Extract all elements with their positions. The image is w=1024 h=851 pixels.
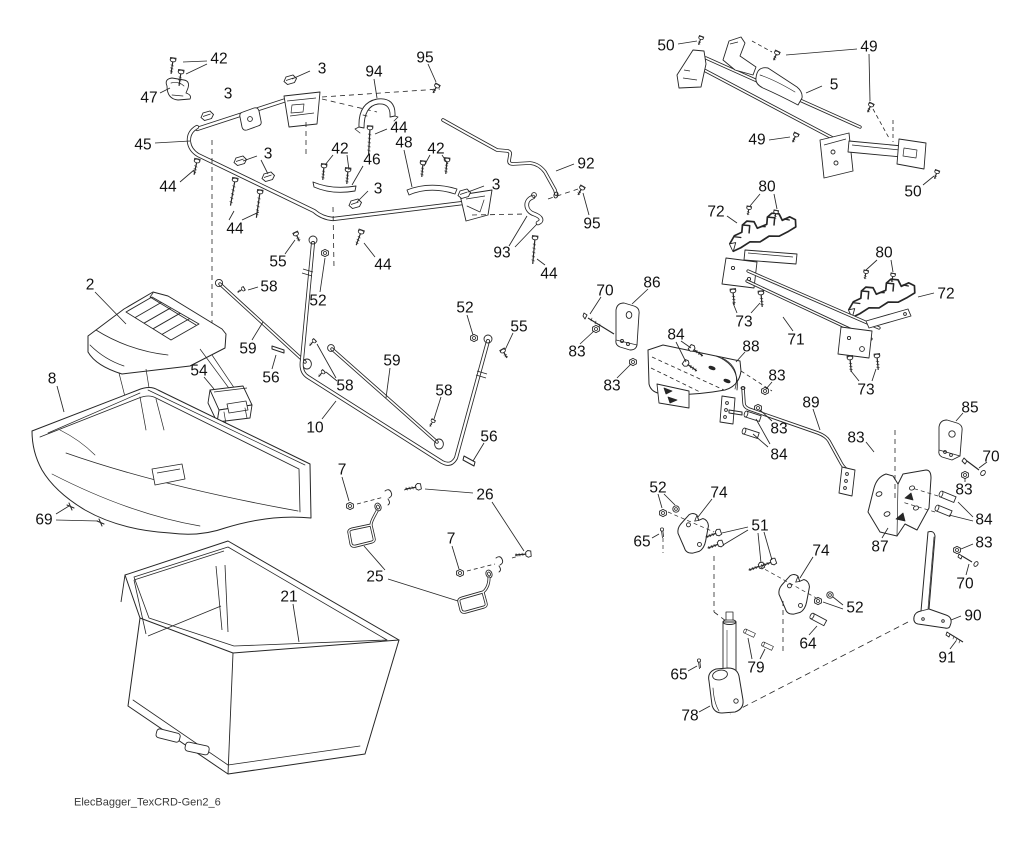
svg-text:87: 87 bbox=[871, 539, 888, 556]
svg-text:49: 49 bbox=[860, 39, 877, 56]
svg-text:84: 84 bbox=[975, 512, 993, 529]
svg-text:56: 56 bbox=[480, 429, 497, 446]
svg-text:58: 58 bbox=[435, 383, 452, 400]
svg-text:52: 52 bbox=[309, 293, 326, 310]
svg-text:42: 42 bbox=[427, 141, 444, 158]
svg-text:44: 44 bbox=[226, 221, 244, 238]
svg-text:47: 47 bbox=[140, 90, 157, 107]
svg-text:55: 55 bbox=[510, 319, 527, 336]
svg-text:86: 86 bbox=[643, 275, 660, 292]
svg-text:54: 54 bbox=[190, 363, 208, 380]
svg-text:3: 3 bbox=[374, 181, 383, 198]
svg-text:73: 73 bbox=[735, 314, 752, 331]
svg-text:88: 88 bbox=[742, 339, 759, 356]
svg-text:72: 72 bbox=[707, 204, 724, 221]
svg-text:65: 65 bbox=[633, 534, 650, 551]
svg-text:59: 59 bbox=[383, 353, 400, 370]
svg-text:ElecBagger_TexCRD-Gen2_6: ElecBagger_TexCRD-Gen2_6 bbox=[74, 797, 221, 809]
svg-text:21: 21 bbox=[280, 589, 297, 606]
svg-text:46: 46 bbox=[363, 152, 380, 169]
svg-text:44: 44 bbox=[159, 179, 177, 196]
svg-text:50: 50 bbox=[904, 184, 922, 201]
svg-text:95: 95 bbox=[583, 216, 600, 233]
svg-text:80: 80 bbox=[758, 179, 776, 196]
svg-text:91: 91 bbox=[938, 650, 955, 667]
svg-text:90: 90 bbox=[964, 608, 982, 625]
svg-text:44: 44 bbox=[374, 257, 392, 274]
svg-text:69: 69 bbox=[35, 512, 52, 529]
svg-text:70: 70 bbox=[982, 449, 1000, 466]
svg-text:71: 71 bbox=[787, 332, 804, 349]
svg-text:48: 48 bbox=[395, 135, 412, 152]
svg-text:3: 3 bbox=[318, 61, 327, 78]
svg-text:92: 92 bbox=[577, 156, 594, 173]
svg-text:3: 3 bbox=[264, 146, 273, 163]
svg-text:83: 83 bbox=[847, 430, 864, 447]
svg-text:64: 64 bbox=[799, 636, 817, 653]
svg-text:10: 10 bbox=[306, 420, 324, 437]
svg-text:95: 95 bbox=[416, 50, 433, 67]
svg-text:26: 26 bbox=[476, 487, 493, 504]
svg-text:83: 83 bbox=[975, 535, 992, 552]
svg-text:80: 80 bbox=[875, 245, 893, 262]
svg-text:83: 83 bbox=[770, 421, 787, 438]
svg-text:5: 5 bbox=[830, 77, 839, 94]
svg-text:8: 8 bbox=[48, 371, 57, 388]
svg-text:2: 2 bbox=[86, 277, 95, 294]
svg-text:3: 3 bbox=[492, 177, 501, 194]
svg-text:83: 83 bbox=[568, 344, 585, 361]
svg-text:84: 84 bbox=[770, 447, 788, 464]
svg-text:52: 52 bbox=[846, 600, 863, 617]
svg-text:83: 83 bbox=[603, 378, 620, 395]
svg-text:74: 74 bbox=[812, 543, 830, 560]
svg-text:7: 7 bbox=[447, 531, 456, 548]
svg-text:94: 94 bbox=[365, 64, 383, 81]
svg-text:59: 59 bbox=[239, 341, 256, 358]
svg-text:58: 58 bbox=[260, 279, 277, 296]
svg-text:45: 45 bbox=[134, 137, 151, 154]
svg-text:70: 70 bbox=[956, 576, 974, 593]
svg-text:70: 70 bbox=[596, 283, 614, 300]
svg-text:65: 65 bbox=[670, 667, 687, 684]
svg-text:52: 52 bbox=[649, 480, 666, 497]
svg-text:3: 3 bbox=[224, 86, 233, 103]
svg-text:44: 44 bbox=[540, 266, 558, 283]
svg-text:85: 85 bbox=[961, 400, 978, 417]
svg-text:55: 55 bbox=[269, 254, 286, 271]
svg-text:52: 52 bbox=[456, 300, 473, 317]
svg-text:89: 89 bbox=[802, 395, 819, 412]
svg-text:58: 58 bbox=[336, 378, 353, 395]
svg-text:83: 83 bbox=[955, 482, 972, 499]
svg-text:78: 78 bbox=[681, 708, 698, 725]
svg-text:73: 73 bbox=[857, 382, 874, 399]
svg-text:49: 49 bbox=[748, 132, 765, 149]
svg-text:42: 42 bbox=[331, 141, 348, 158]
svg-text:84: 84 bbox=[667, 327, 685, 344]
svg-text:72: 72 bbox=[937, 286, 954, 303]
svg-text:56: 56 bbox=[262, 370, 279, 387]
svg-text:83: 83 bbox=[768, 368, 785, 385]
svg-text:7: 7 bbox=[338, 462, 347, 479]
svg-text:93: 93 bbox=[493, 245, 510, 262]
svg-text:74: 74 bbox=[710, 485, 728, 502]
svg-text:79: 79 bbox=[747, 660, 764, 677]
svg-text:50: 50 bbox=[657, 38, 675, 55]
svg-text:42: 42 bbox=[210, 51, 227, 68]
svg-text:51: 51 bbox=[751, 518, 768, 535]
svg-text:25: 25 bbox=[366, 569, 383, 586]
